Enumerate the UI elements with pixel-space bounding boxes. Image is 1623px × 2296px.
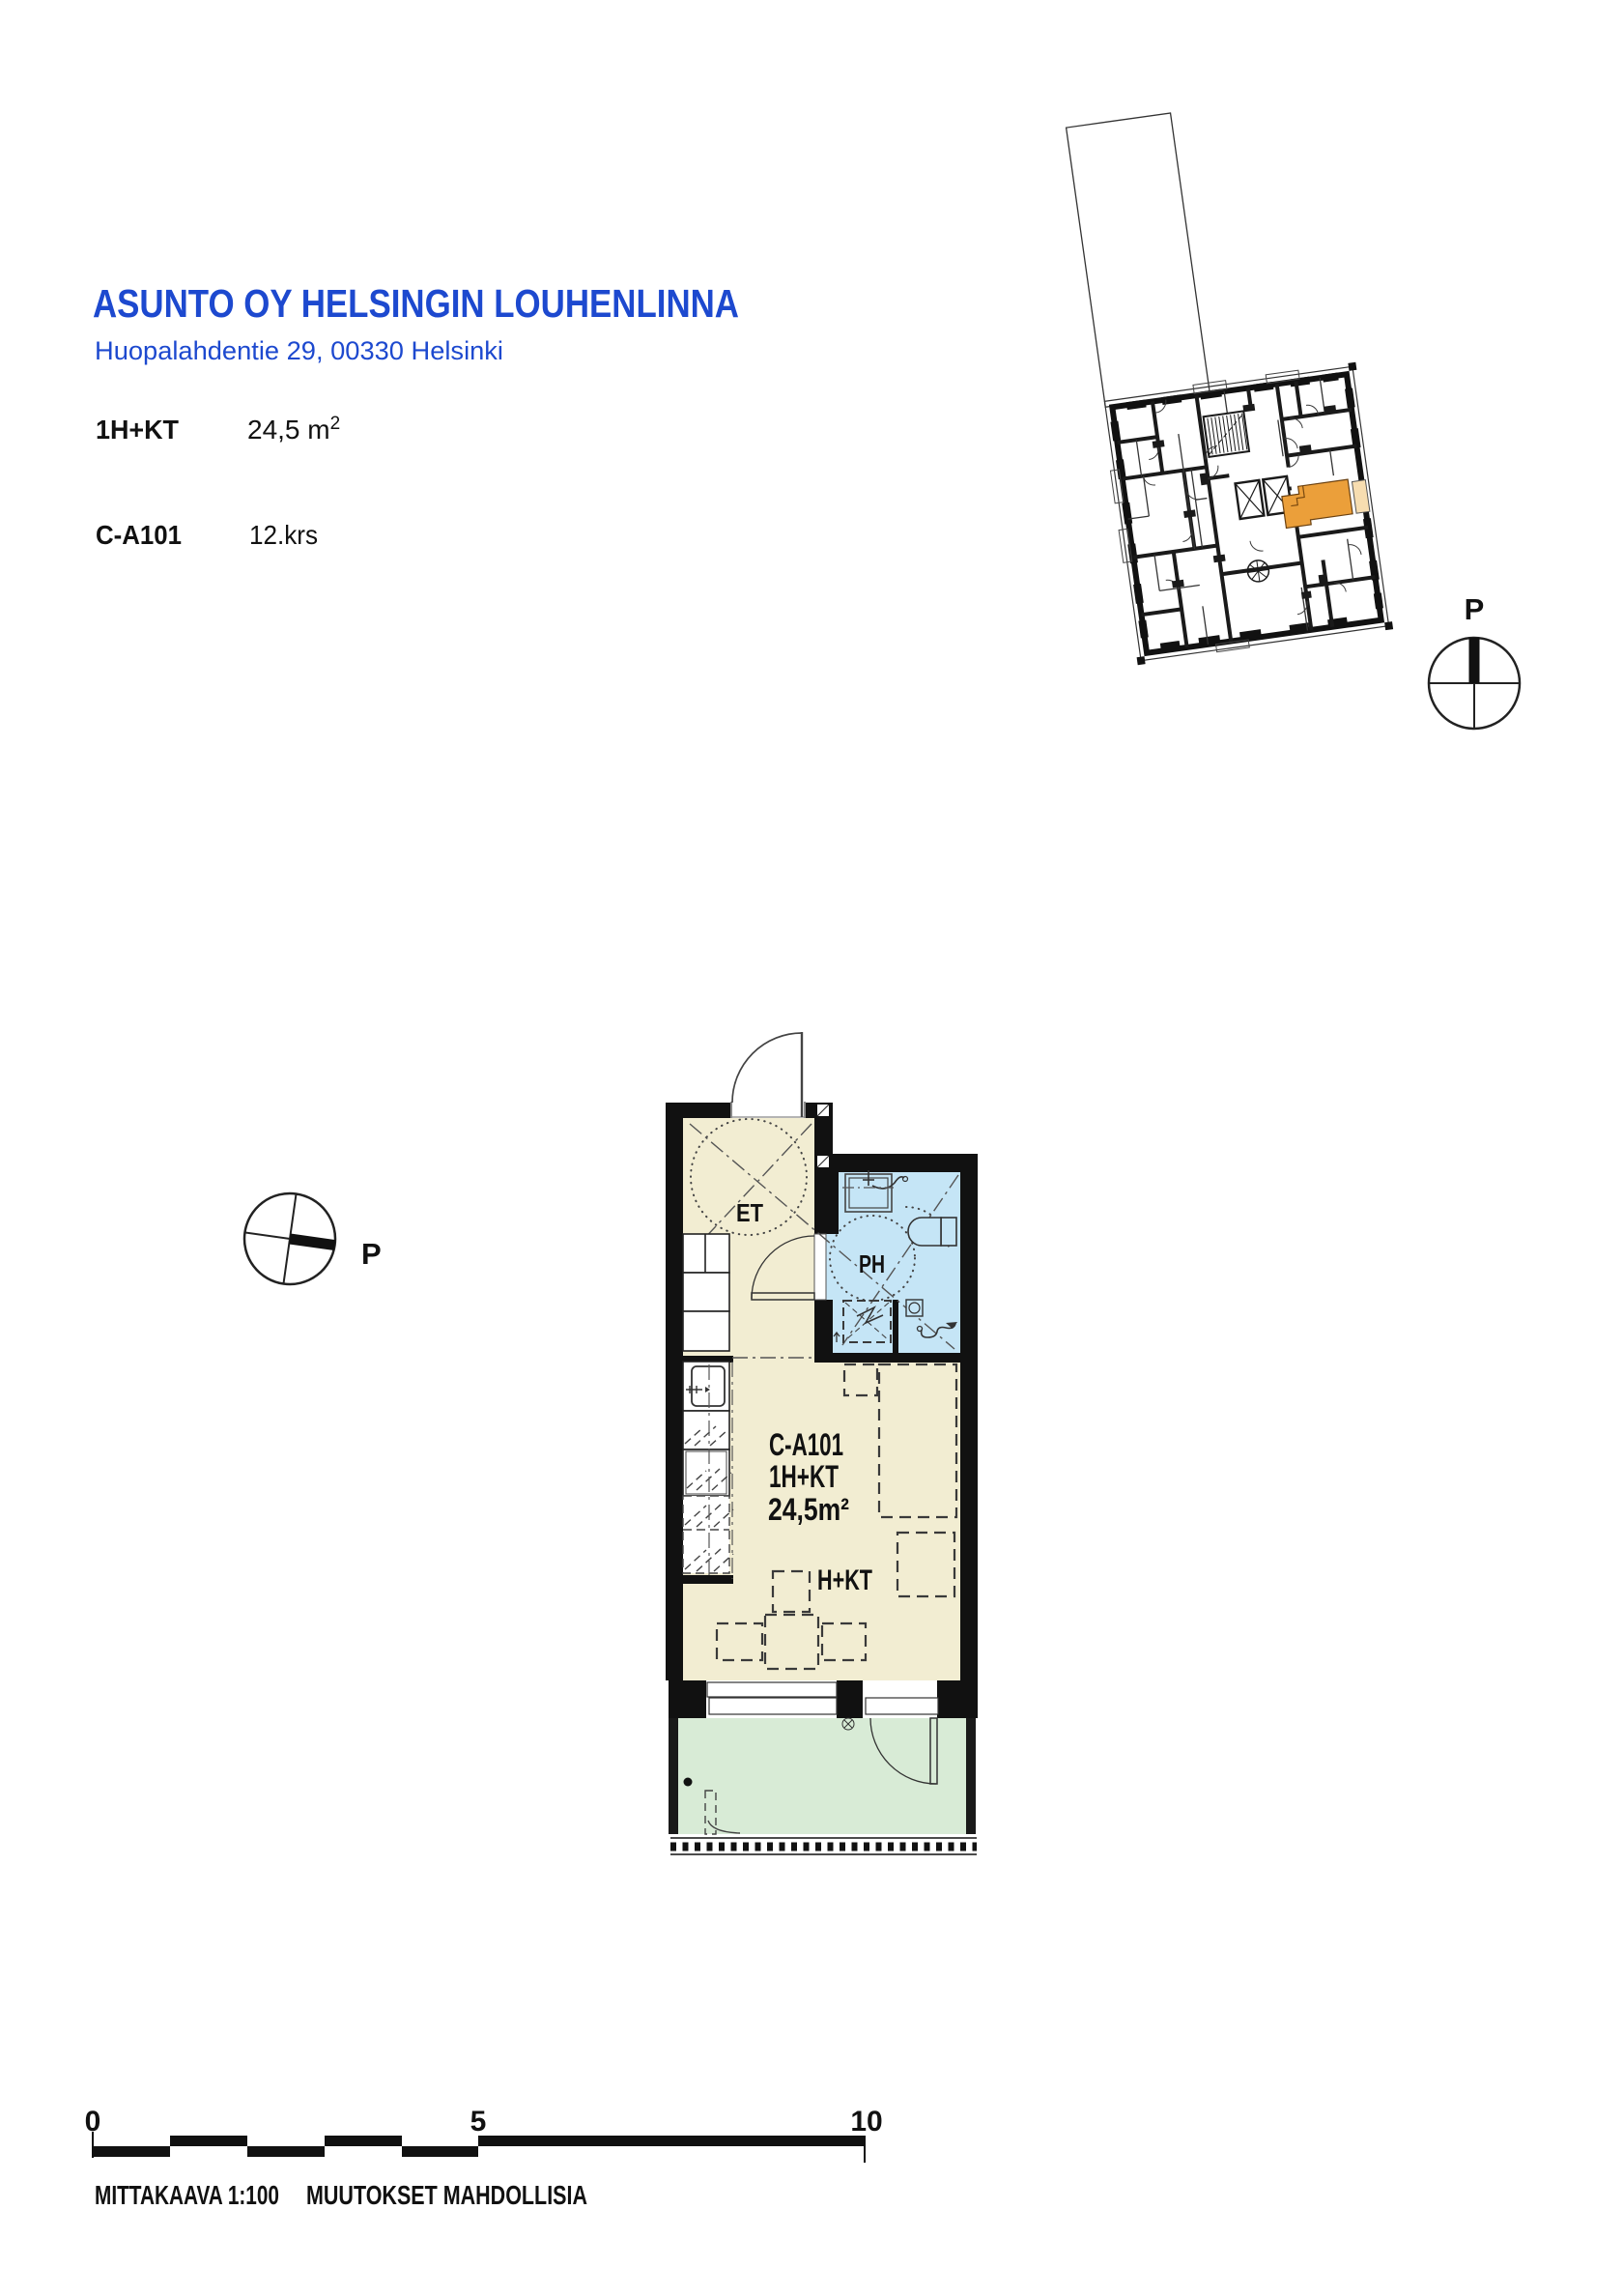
- svg-text:PH: PH: [859, 1249, 885, 1278]
- svg-text:MUUTOKSET MAHDOLLISIA: MUUTOKSET MAHDOLLISIA: [306, 2180, 587, 2210]
- svg-text:5: 5: [470, 2106, 487, 2138]
- svg-text:P: P: [1465, 592, 1485, 626]
- svg-text:Huopalahdentie 29, 00330 Helsi: Huopalahdentie 29, 00330 Helsinki: [95, 336, 503, 365]
- svg-text:1H+KT: 1H+KT: [96, 415, 179, 445]
- svg-text:C-A101: C-A101: [96, 520, 182, 550]
- svg-text:ET: ET: [736, 1198, 763, 1227]
- svg-text:P: P: [361, 1237, 382, 1271]
- svg-text:12.krs: 12.krs: [249, 520, 318, 550]
- svg-text:10: 10: [850, 2106, 882, 2138]
- svg-text:MITTAKAAVA 1:100: MITTAKAAVA 1:100: [95, 2180, 279, 2210]
- svg-text:ASUNTO OY HELSINGIN LOUHENLINN: ASUNTO OY HELSINGIN LOUHENLINNA: [93, 281, 739, 326]
- svg-text:C-A101: C-A101: [769, 1427, 843, 1462]
- svg-text:24,5 m2: 24,5 m2: [247, 414, 340, 445]
- svg-text:H+KT: H+KT: [817, 1564, 872, 1596]
- svg-text:1H+KT: 1H+KT: [769, 1459, 839, 1494]
- svg-text:24,5m²: 24,5m²: [768, 1492, 849, 1527]
